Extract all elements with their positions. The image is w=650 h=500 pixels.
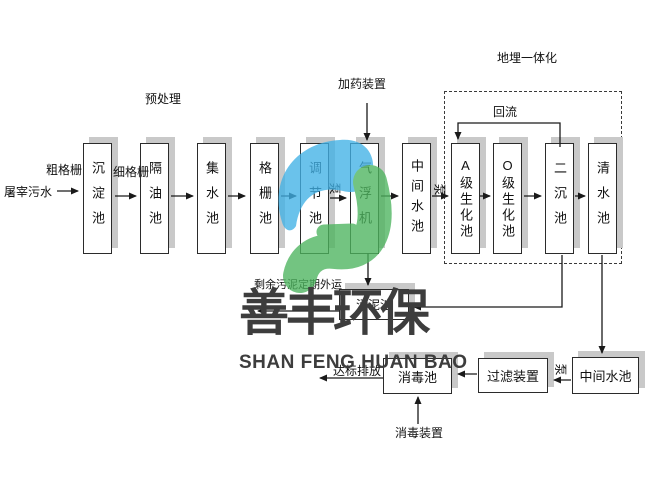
tank-clear-water: 清水池: [588, 143, 617, 254]
reflux-label: 回流: [493, 103, 517, 120]
tank-o-biochemical: O级生化池: [493, 143, 522, 254]
tank-oil-separation: 隔油池: [140, 143, 169, 254]
filter-device-box: 过滤装置: [478, 358, 548, 393]
tank-air-flotation: 气浮机: [350, 143, 379, 254]
tank-a-biochemical: A级生化池: [451, 143, 480, 254]
pretreatment-label: 预处理: [145, 90, 181, 107]
tank-sedimentation: 沉淀池: [83, 143, 112, 254]
fine-screen-label: 细格栅: [113, 163, 149, 180]
coarse-screen-label: 粗格栅: [46, 161, 82, 178]
watermark-cn-text: 善丰环保: [239, 286, 427, 341]
tank-intermediate-2: 中间水池: [572, 357, 639, 394]
dosing-device-label: 加药装置: [338, 75, 386, 92]
buried-integration-label: 地埋一体化: [497, 49, 557, 66]
tank-intermediate-1: 中间水池: [402, 143, 431, 254]
pump-label-2: 泵: [432, 183, 449, 195]
disinfection-device-label: 消毒装置: [395, 424, 443, 441]
process-flow-diagram: 沉淀池 隔油池 集水池 格栅池 调节池 气浮机 中间水池 A级生化池 O级生化池…: [0, 0, 650, 500]
influent-label: 屠宰污水: [4, 183, 52, 200]
pump-label-3: 泵: [553, 363, 570, 375]
tank-collecting: 集水池: [197, 143, 226, 254]
tank-regulating: 调节池: [300, 143, 329, 254]
pump-label-1: 泵: [327, 182, 344, 194]
tank-secondary-sediment: 二沉池: [545, 143, 574, 254]
watermark-en-text: SHAN FENG HUAN BAO: [239, 352, 468, 374]
tank-screen: 格栅池: [250, 143, 279, 254]
